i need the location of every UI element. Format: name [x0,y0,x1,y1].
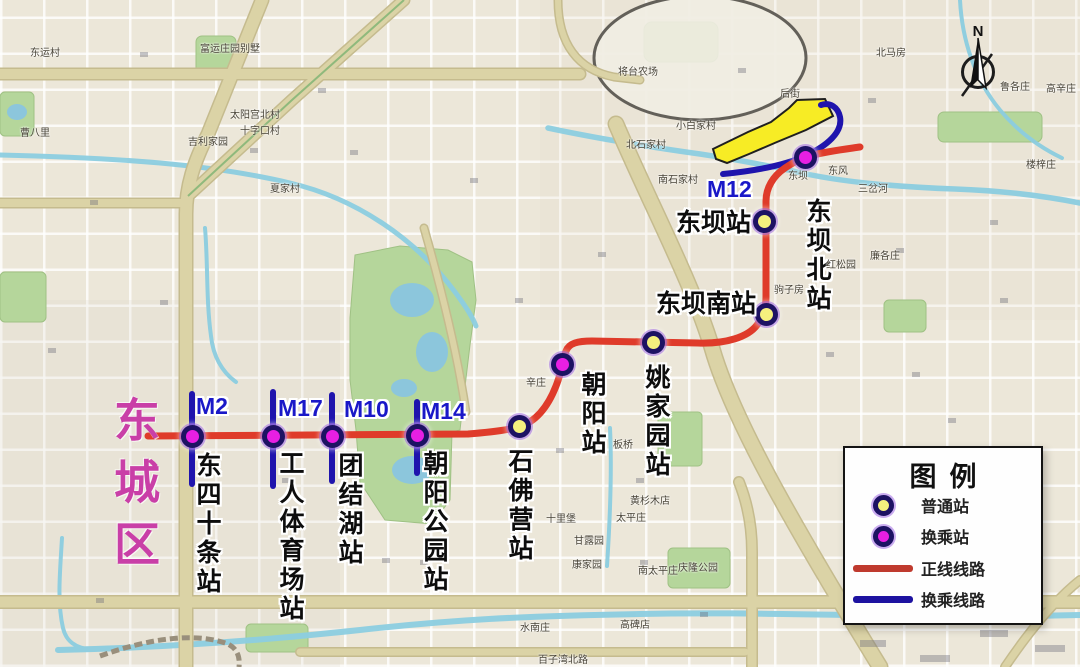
map-label: 夏家村 [270,180,300,195]
station-dongbanan[interactable] [755,303,778,326]
station-label-dongba: 东坝站 [676,209,751,237]
legend-label: 普通站 [921,493,969,517]
legend-label: 换乘站 [921,524,969,548]
legend-label: 正线线路 [921,556,985,580]
station-chaoyanggongyuan[interactable] [406,424,429,447]
station-chaoyang[interactable] [551,353,574,376]
station-label-gongrentiyuchang: 工人体育场站 [276,450,304,624]
map-label: 廉各庄 [870,247,900,262]
map-label: 十字口村 [240,122,280,137]
map-label: 南太平庄 [638,562,678,577]
map-label: 南石家村 [658,171,698,186]
station-label-tuanjiehu: 团结湖站 [335,452,363,568]
map-label: 东坝 [788,167,808,182]
north-arrow-icon: N [950,22,1010,112]
map-label: 后街 [780,85,800,100]
legend-item-transfer-line: 换乘线路 [845,586,1041,612]
line-badge-m14: M14 [421,398,466,425]
station-yaojiayuan[interactable] [642,331,665,354]
map-label: 黄杉木店 [630,492,670,507]
map-label: 驹子房 [774,281,804,296]
map-label: 水南庄 [520,619,550,634]
station-label-dongsishitiao: 东四十条站 [193,452,221,597]
compass-n-label: N [973,23,984,40]
line-badge-m10: M10 [344,396,389,423]
map-label: 吉利家园 [188,133,228,148]
legend-item-regular-station: 普通站 [845,492,1041,518]
line-badge-m17: M17 [278,395,323,422]
map-label: 百子湾北路 [538,651,588,666]
map-label: 太平庄 [616,509,646,524]
station-label-chaoyanggongyuan: 朝阳公园站 [420,450,448,595]
legend-label: 换乘线路 [921,587,985,611]
map-label: 板桥 [613,436,633,451]
line-badge-m12: M12 [707,176,752,203]
map-label: 东风 [828,162,848,177]
map-label: 曹八里 [20,124,50,139]
map-canvas: M2 M17 M10 M14 M12 东四十条站 工人体育场站 团结湖站 朝阳公… [0,0,1080,667]
legend-box: 图例 普通站 换乘站 正线线路 换乘线路 [843,446,1043,625]
map-label: 三岔河 [858,180,888,195]
map-label: 小白家村 [676,117,716,132]
legend-title: 图例 [845,455,1041,494]
map-label: 辛庄 [526,374,546,389]
map-label: 庆隆公园 [678,559,718,574]
map-label: 北石家村 [626,136,666,151]
station-dongba[interactable] [753,210,776,233]
map-label: 高碑店 [620,616,650,631]
regular-station-icon [873,495,894,516]
legend-item-main-line: 正线线路 [845,555,1041,581]
map-label: 甘露园 [574,532,604,547]
station-label-yaojiayuan: 姚家园站 [642,364,670,480]
station-shifoying[interactable] [508,415,531,438]
map-label: 富运庄园别墅 [200,40,260,55]
main-line-swatch [853,565,913,572]
station-dongbabei[interactable] [794,146,817,169]
map-label: 红松园 [826,256,856,271]
station-dongsishitiao[interactable] [181,425,204,448]
station-gongrentiyuchang[interactable] [262,425,285,448]
station-tuanjiehu[interactable] [321,425,344,448]
map-label: 康家园 [572,556,602,571]
legend-item-transfer-station: 换乘站 [845,523,1041,549]
map-label: 太阳宫北村 [230,106,280,121]
station-label-dongbanan: 东坝南站 [656,290,756,318]
transfer-station-icon [873,526,894,547]
map-label: 楼梓庄 [1026,156,1056,171]
map-label: 将台农场 [618,63,658,78]
map-label: 北马房 [876,44,906,59]
transfer-line-swatch [853,596,913,603]
map-label: 东运村 [30,44,60,59]
map-label: 高辛庄 [1046,80,1076,95]
station-label-chaoyang: 朝阳站 [578,371,606,458]
station-label-shifoying: 石佛营站 [505,448,533,564]
line-badge-m2: M2 [196,393,228,420]
map-label: 十里堡 [546,510,576,525]
district-label: 东城区 [100,396,166,582]
